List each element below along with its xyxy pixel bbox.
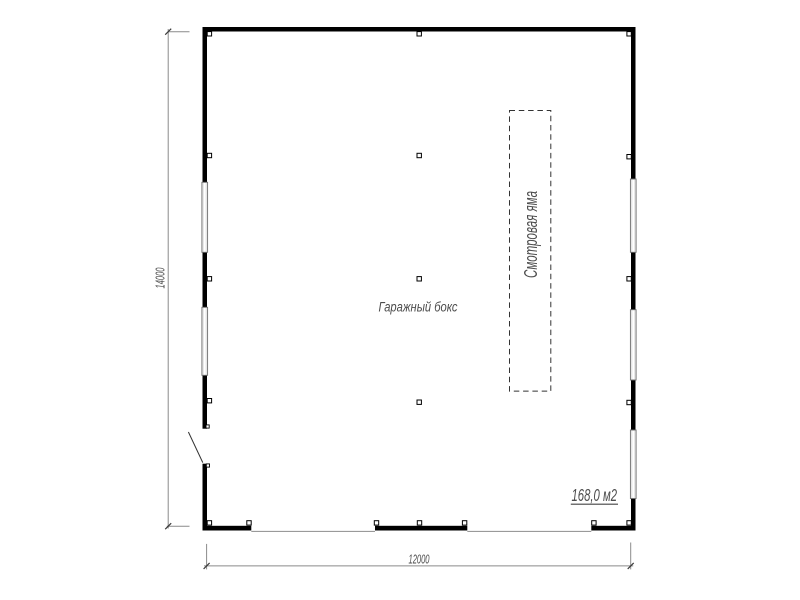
svg-text:12000: 12000 — [409, 552, 430, 566]
svg-text:168,0 м2: 168,0 м2 — [572, 485, 618, 505]
svg-text:14000: 14000 — [154, 267, 168, 288]
svg-text:Смотровая яма: Смотровая яма — [520, 191, 541, 278]
svg-text:Гаражный бокс: Гаражный бокс — [379, 300, 458, 315]
